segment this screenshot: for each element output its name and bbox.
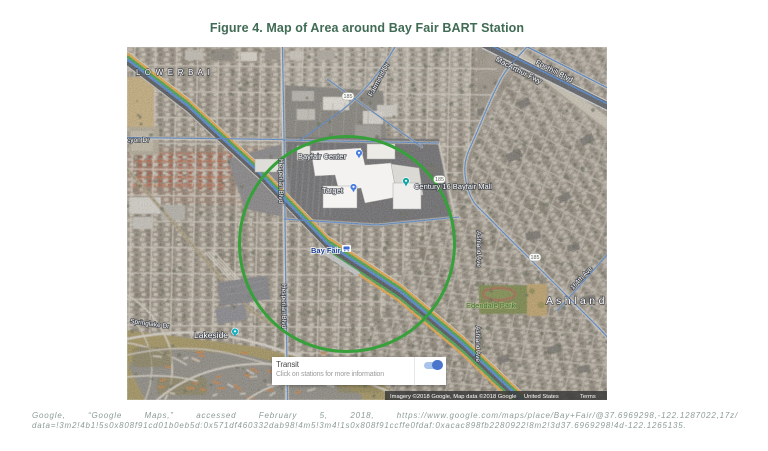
- svg-text:cyon Dr: cyon Dr: [127, 137, 150, 144]
- svg-text:Century 16 Bayfair Mall: Century 16 Bayfair Mall: [414, 182, 492, 191]
- svg-text:Terms: Terms: [580, 394, 596, 400]
- svg-text:Edendale Park: Edendale Park: [466, 301, 515, 310]
- svg-text:185: 185: [531, 255, 540, 261]
- svg-text:Lakeside: Lakeside: [194, 330, 228, 340]
- svg-text:A s h l a n d: A s h l a n d: [546, 295, 605, 307]
- svg-text:185: 185: [344, 94, 353, 100]
- svg-text:Hesperian Blvd: Hesperian Blvd: [277, 159, 284, 203]
- svg-text:Bay Fair: Bay Fair: [311, 246, 341, 255]
- svg-text:Imagery ©2018 Google, Map data: Imagery ©2018 Google, Map data ©2018 Goo…: [390, 393, 517, 400]
- svg-text:Target: Target: [322, 186, 344, 195]
- svg-text:Bayfair Center: Bayfair Center: [298, 152, 346, 161]
- svg-text:United States: United States: [524, 394, 559, 400]
- svg-text:185: 185: [435, 177, 444, 183]
- svg-text:Ashland Ave: Ashland Ave: [475, 231, 482, 267]
- svg-text:Hesperian Blvd: Hesperian Blvd: [280, 284, 287, 328]
- svg-text:Ashland Ave: Ashland Ave: [474, 326, 481, 362]
- svg-text:L O W E R B A I: L O W E R B A I: [136, 68, 211, 77]
